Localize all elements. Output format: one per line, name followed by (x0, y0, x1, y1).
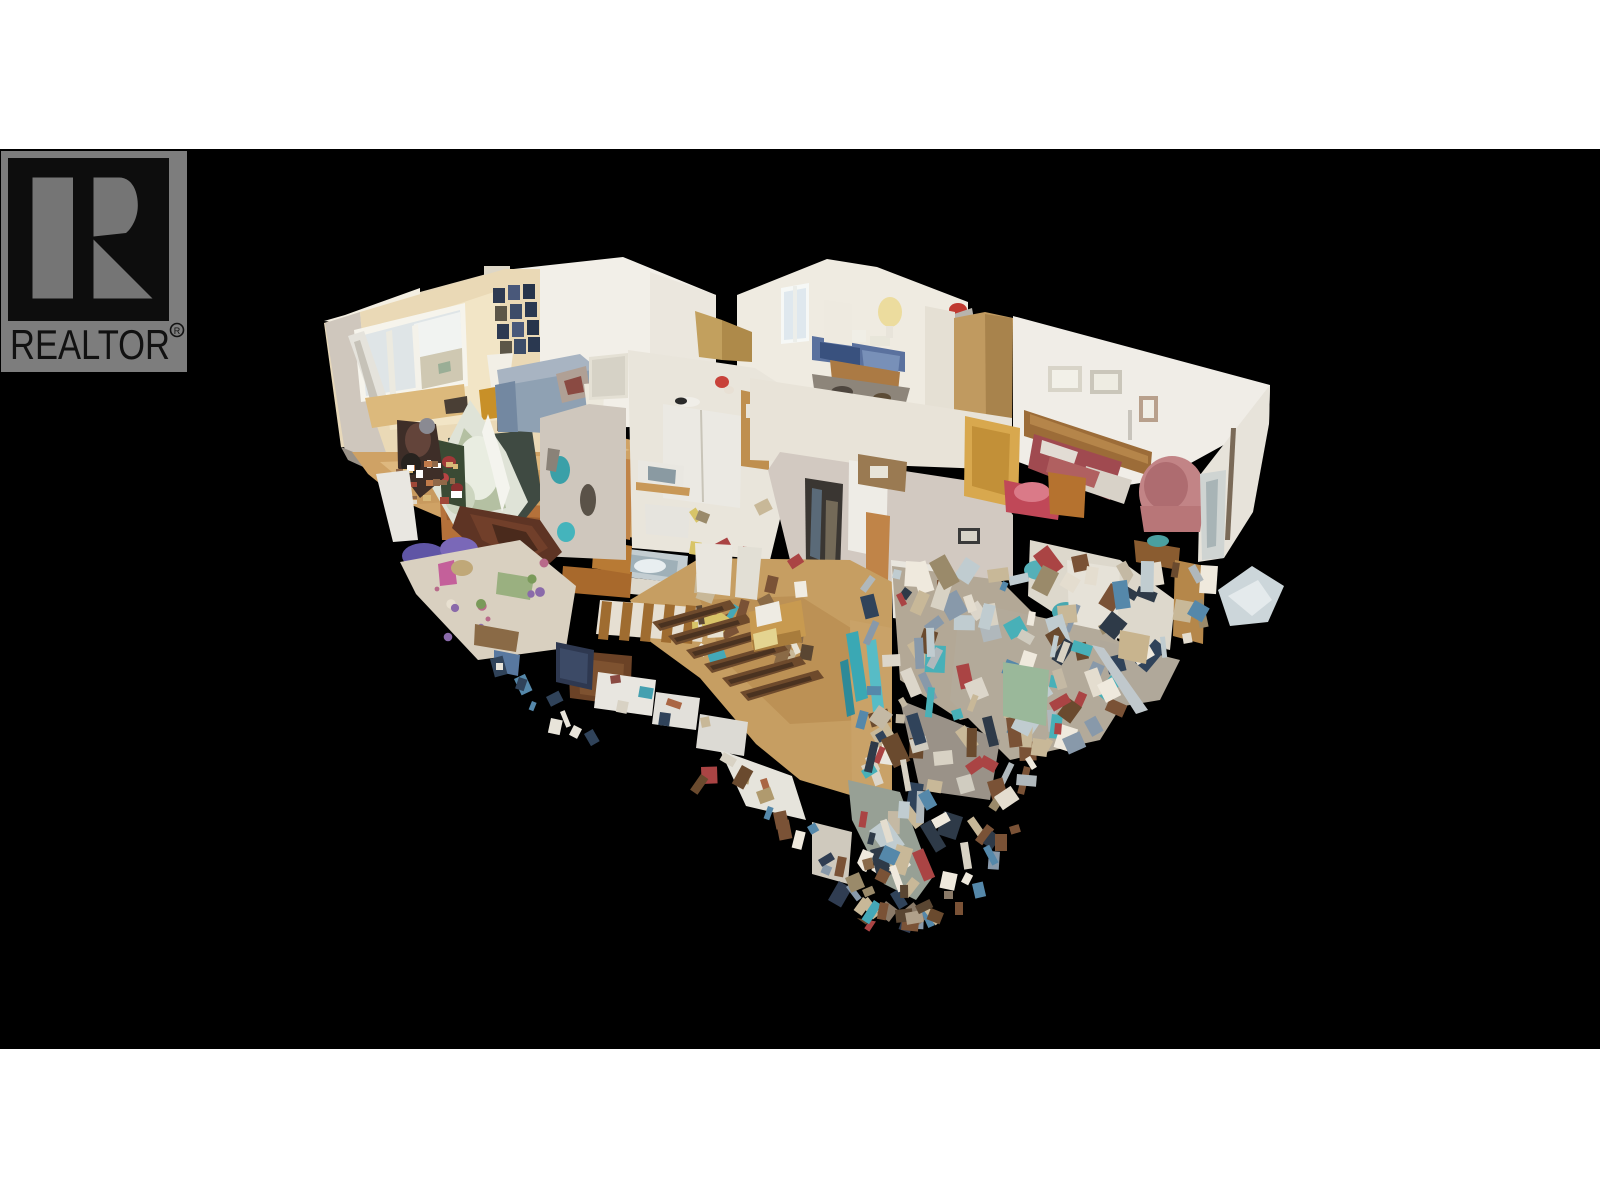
svg-text:REALTOR: REALTOR (10, 321, 170, 368)
svg-text:R: R (174, 326, 181, 336)
